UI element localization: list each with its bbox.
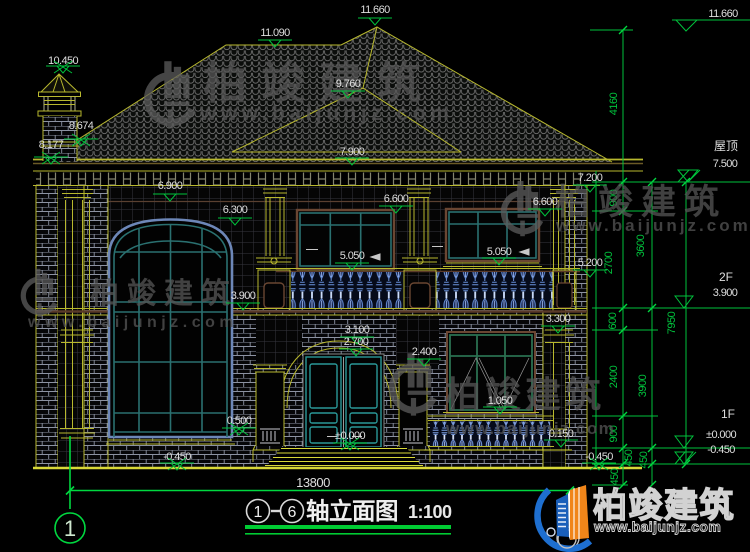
svg-text:2F: 2F bbox=[719, 270, 733, 284]
svg-text:1:100: 1:100 bbox=[408, 502, 452, 522]
svg-text:-0.450: -0.450 bbox=[163, 451, 191, 463]
svg-text:www.baijunjz.com: www.baijunjz.com bbox=[27, 314, 238, 331]
svg-text:600: 600 bbox=[607, 312, 619, 329]
svg-text:-0.450: -0.450 bbox=[585, 451, 613, 463]
svg-text:5.050: 5.050 bbox=[487, 246, 512, 258]
svg-text:www.baijunjz.com: www.baijunjz.com bbox=[199, 102, 453, 125]
svg-text:7950: 7950 bbox=[666, 311, 678, 334]
svg-text:±0.000: ±0.000 bbox=[335, 430, 365, 442]
svg-text:1F: 1F bbox=[721, 407, 735, 421]
svg-text:柏竣建筑: 柏竣建筑 bbox=[203, 59, 435, 108]
svg-text:8.674: 8.674 bbox=[69, 120, 94, 132]
svg-text:www.baijunjz.com: www.baijunjz.com bbox=[593, 519, 721, 535]
svg-text:3.900: 3.900 bbox=[713, 287, 738, 299]
svg-text:11.660: 11.660 bbox=[708, 8, 738, 20]
svg-text:www.baijunjz.com: www.baijunjz.com bbox=[555, 216, 750, 235]
svg-text:1: 1 bbox=[254, 504, 263, 521]
svg-text:7.900: 7.900 bbox=[340, 146, 365, 158]
svg-text:屋顶: 屋顶 bbox=[714, 139, 738, 153]
svg-text:www.baijunjz.com: www.baijunjz.com bbox=[445, 419, 615, 438]
svg-text:6.300: 6.300 bbox=[223, 204, 248, 216]
svg-text:2.400: 2.400 bbox=[412, 346, 437, 358]
svg-text:11.090: 11.090 bbox=[260, 27, 290, 39]
svg-text:1: 1 bbox=[64, 516, 76, 541]
svg-text:3600: 3600 bbox=[635, 234, 647, 257]
svg-text:3.100: 3.100 bbox=[345, 324, 370, 336]
svg-text:5.050: 5.050 bbox=[340, 250, 365, 262]
svg-text:8.177: 8.177 bbox=[39, 139, 64, 151]
svg-text:4160: 4160 bbox=[608, 92, 620, 115]
svg-text:2700: 2700 bbox=[603, 251, 615, 274]
svg-text:1.050: 1.050 bbox=[488, 395, 513, 407]
svg-text:450: 450 bbox=[623, 449, 635, 466]
svg-text:9.760: 9.760 bbox=[336, 78, 361, 90]
svg-text:6: 6 bbox=[288, 504, 297, 521]
svg-text:2400: 2400 bbox=[608, 365, 620, 388]
svg-text:3.300: 3.300 bbox=[546, 313, 571, 325]
svg-text:6.600: 6.600 bbox=[533, 196, 558, 208]
svg-text:6.600: 6.600 bbox=[384, 193, 409, 205]
svg-text:3900: 3900 bbox=[637, 374, 649, 397]
svg-text:13800: 13800 bbox=[296, 475, 330, 490]
svg-text:-0.450: -0.450 bbox=[707, 444, 735, 456]
svg-text:5.200: 5.200 bbox=[578, 257, 603, 269]
svg-text:450: 450 bbox=[638, 451, 650, 468]
svg-text:7.200: 7.200 bbox=[578, 172, 603, 184]
svg-text:轴立面图: 轴立面图 bbox=[306, 497, 398, 524]
svg-text:柏竣建筑: 柏竣建筑 bbox=[90, 276, 238, 310]
svg-text:0.150: 0.150 bbox=[549, 428, 574, 440]
svg-text:7.500: 7.500 bbox=[713, 158, 738, 170]
svg-text:450: 450 bbox=[609, 468, 621, 485]
svg-text:11.660: 11.660 bbox=[360, 4, 390, 16]
svg-text:10.450: 10.450 bbox=[48, 55, 79, 67]
svg-text:±0.000: ±0.000 bbox=[706, 429, 736, 441]
svg-text:6.900: 6.900 bbox=[158, 180, 183, 192]
svg-text:柏竣建筑: 柏竣建筑 bbox=[445, 374, 605, 415]
svg-text:2.700: 2.700 bbox=[344, 336, 369, 348]
svg-text:3.900: 3.900 bbox=[231, 290, 256, 302]
svg-text:0.500: 0.500 bbox=[227, 415, 252, 427]
